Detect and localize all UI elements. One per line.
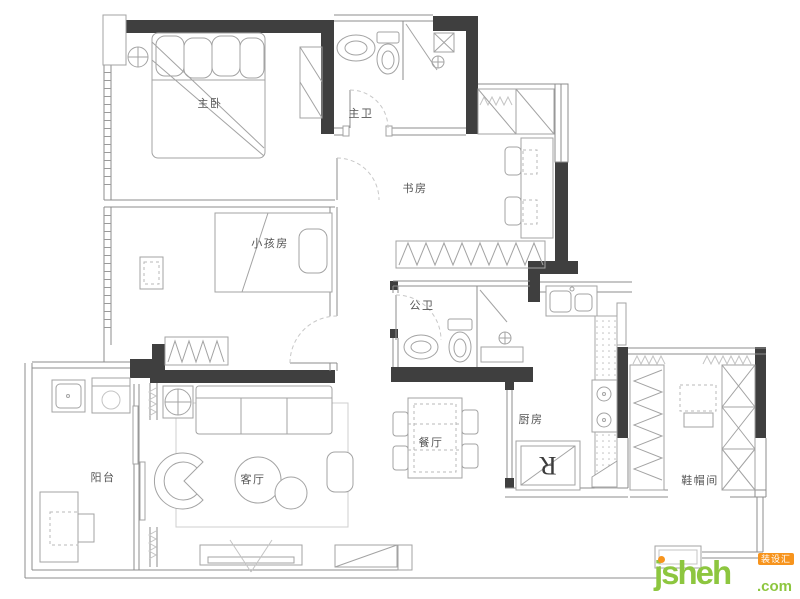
label-balcony: 阳台 [91,470,116,484]
cloakroom-furniture [630,365,755,568]
watermark-site-text: jsheh [654,556,730,589]
master-bedroom-furniture [128,33,322,158]
floorplan-image: R [0,0,800,599]
label-kitchen: 厨房 [519,413,544,426]
kitchen-fixtures: R [516,286,617,490]
label-dining-room: 餐厅 [419,435,444,449]
label-kids-room: 小孩房 [251,237,289,250]
label-cloak-room: 鞋帽间 [681,473,719,487]
living-room-furniture [154,386,412,572]
watermark-logo: jsheh 装设汇 .com [636,551,794,595]
watermark-orange-dot-icon [658,556,665,563]
label-study: 书房 [403,182,428,195]
fridge-label: R [539,451,557,480]
watermark-badge: 装设汇 [758,553,794,565]
watermark-tld-text: .com [757,578,792,595]
label-living-room: 客厅 [241,472,266,486]
label-master-bath: 主卫 [349,107,374,120]
label-master-bedroom: 主卧 [198,97,223,110]
floorplan-canvas: R [0,0,800,599]
label-public-bath: 公卫 [410,300,435,312]
kids-room-furniture [140,213,332,365]
balcony-furniture [40,378,130,562]
